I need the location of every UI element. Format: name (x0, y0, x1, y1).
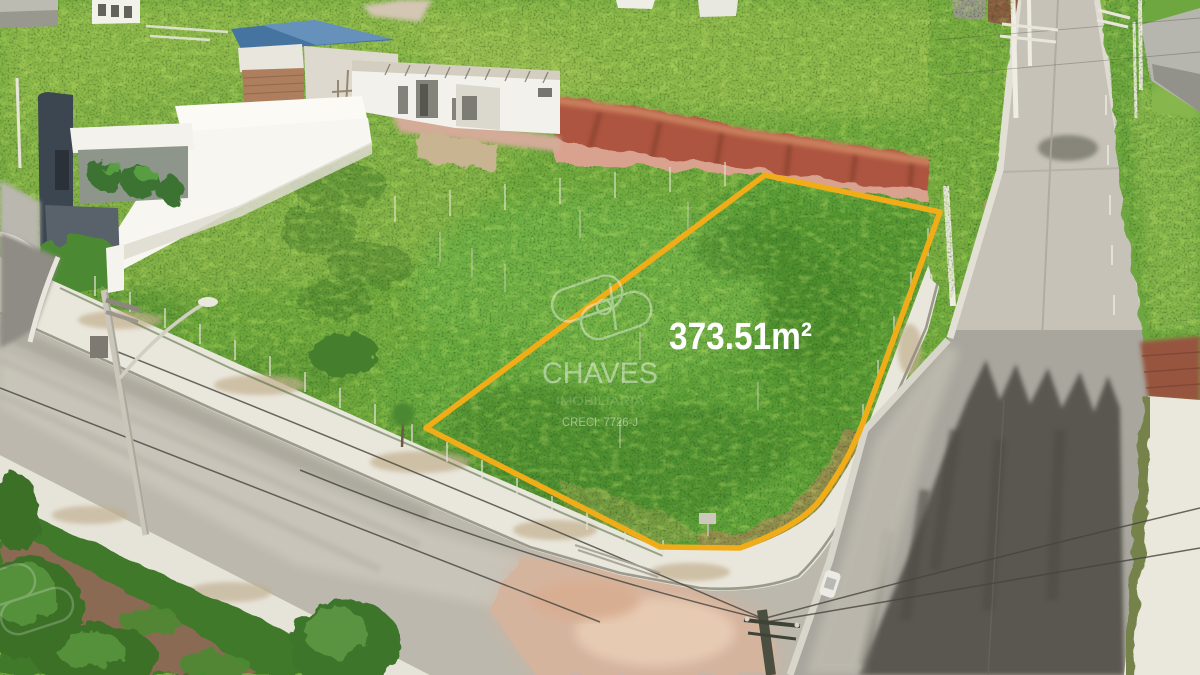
svg-text:373.51m²: 373.51m² (669, 316, 812, 358)
svg-text:CHAVES: CHAVES (542, 357, 658, 390)
svg-text:CRECI: 7726-J: CRECI: 7726-J (562, 415, 638, 429)
svg-text:IMOBILIÁRIA: IMOBILIÁRIA (556, 393, 644, 408)
